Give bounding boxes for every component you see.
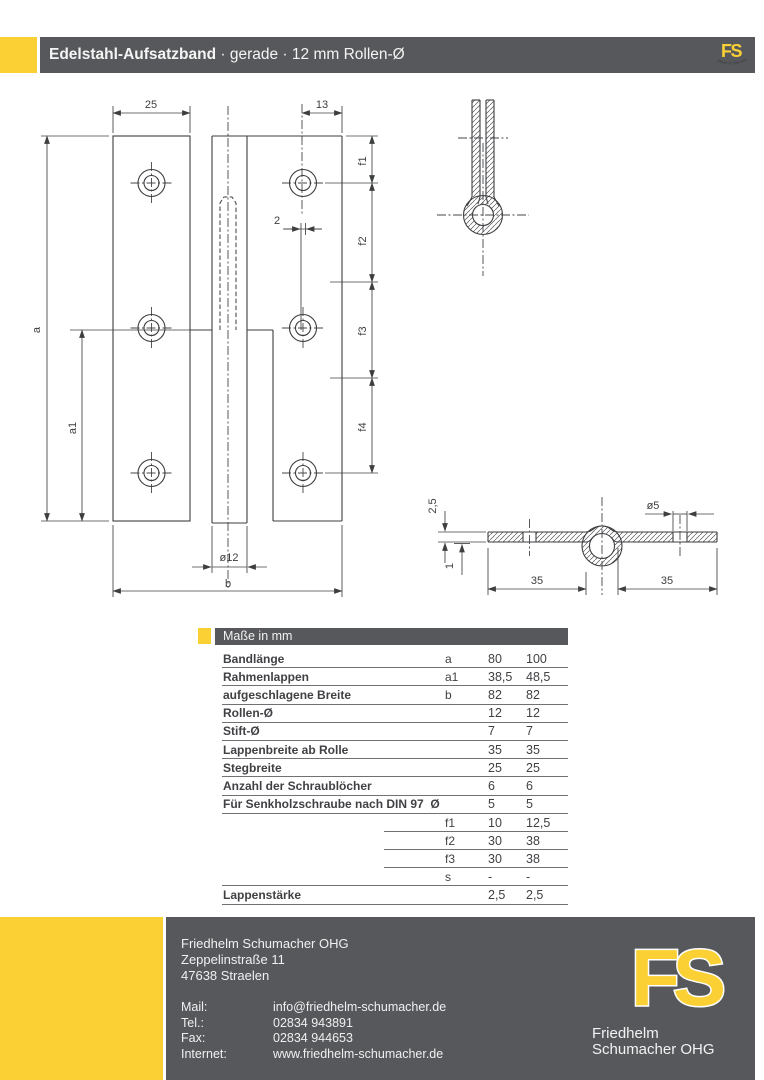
table-cell-label: Lappenstärke xyxy=(222,888,440,902)
dim-label-b: b xyxy=(225,578,231,590)
table-cell-v2: 82 xyxy=(522,688,568,702)
company-line: 47638 Straelen xyxy=(181,968,349,984)
table-cell-v1: 25 xyxy=(484,761,522,775)
technical-drawing: 25 13 2 a a1 f1 f2 f3 f4 ø12 b xyxy=(0,0,764,625)
table-cell-v2: 35 xyxy=(522,743,568,757)
contact-value: info@friedhelm-schumacher.de xyxy=(273,1000,446,1016)
table-cell-sym: f2 xyxy=(440,834,484,848)
contact-row: Internet:www.friedhelm-schumacher.de xyxy=(181,1047,446,1063)
table-cell-v1: 38,5 xyxy=(484,670,522,684)
dim-label-35-left: 35 xyxy=(531,575,543,587)
dim-label-f1: f1 xyxy=(357,156,369,165)
contact-row: Mail:info@friedhelm-schumacher.de xyxy=(181,1000,446,1016)
table-cell-v1: 30 xyxy=(484,852,522,866)
table-cell-v1: 82 xyxy=(484,688,522,702)
table-cell-v2: - xyxy=(522,870,568,884)
side-view xyxy=(437,100,529,276)
table-cell-v1: 12 xyxy=(484,706,522,720)
center-lines xyxy=(131,104,325,588)
dim-label-13: 13 xyxy=(316,99,328,111)
contact-row: Fax:02834 944653 xyxy=(181,1031,446,1047)
contact-label: Internet: xyxy=(181,1047,273,1063)
table-row: f33038 xyxy=(222,850,568,868)
dim-label-roll: ø12 xyxy=(220,552,239,564)
contact-row: Tel.:02834 943891 xyxy=(181,1016,446,1032)
dim-label-2: 2 xyxy=(274,215,280,227)
table-cell-v2: 5 xyxy=(522,797,568,811)
table-cell-v1: 6 xyxy=(484,779,522,793)
dim-label-f3: f3 xyxy=(357,326,369,335)
dim-label-thickness: 2,5 xyxy=(427,498,439,513)
table-cell-sym: f1 xyxy=(440,816,484,830)
dim-label-25: 25 xyxy=(145,99,157,111)
table-cell-v1: - xyxy=(484,870,522,884)
table-cell-v2: 12,5 xyxy=(522,816,568,830)
table-cell-v1: 5 xyxy=(484,797,522,811)
table-row: aufgeschlagene Breiteb8282 xyxy=(222,686,568,704)
footer-brand-name: Friedhelm Schumacher OHG xyxy=(592,1026,715,1057)
table-row: Rahmenlappena138,548,5 xyxy=(222,668,568,686)
table-header: Maße in mm xyxy=(215,628,568,645)
dim-label-f4: f4 xyxy=(357,422,369,431)
datasheet-page: { "page": { "title_bold": "Edelstahl-Auf… xyxy=(0,0,764,1080)
table-row: Stegbreite2525 xyxy=(222,759,568,777)
footer-company-address: Friedhelm Schumacher OHGZeppelinstraße 1… xyxy=(181,936,349,984)
table-cell-v2: 12 xyxy=(522,706,568,720)
company-line: Friedhelm Schumacher OHG xyxy=(181,936,349,952)
table-cell-sym: f3 xyxy=(440,852,484,866)
table-cell-label: Rollen-Ø xyxy=(222,706,440,720)
section-view: 2,5 1 ø5 35 35 xyxy=(427,497,717,595)
table-cell-label: Für Senkholzschraube nach DIN 97 Ø xyxy=(222,797,440,811)
table-cell-label: Stegbreite xyxy=(222,761,440,775)
brand-logo-large: FS xyxy=(580,925,760,1025)
table-cell-v1: 2,5 xyxy=(484,888,522,902)
dim-label-a: a xyxy=(31,326,43,333)
table-cell-v2: 25 xyxy=(522,761,568,775)
contact-value: www.friedhelm-schumacher.de xyxy=(273,1047,446,1063)
table-row: Lappenbreite ab Rolle3535 xyxy=(222,741,568,759)
table-cell-label: Bandlänge xyxy=(222,652,440,666)
table-row: f23038 xyxy=(222,832,568,850)
table-cell-label: Stift-Ø xyxy=(222,724,440,738)
contact-label: Fax: xyxy=(181,1031,273,1047)
table-row: Stift-Ø77 xyxy=(222,723,568,741)
brand-monogram-icon: FS xyxy=(631,933,724,1022)
dimensions-table: Bandlängea80100Rahmenlappena138,548,5auf… xyxy=(222,650,568,905)
table-accent-square xyxy=(198,628,211,644)
front-dimensions xyxy=(41,106,378,597)
table-cell-v2: 2,5 xyxy=(522,888,568,902)
table-cell-v1: 80 xyxy=(484,652,522,666)
dim-label-one: 1 xyxy=(444,563,456,569)
table-cell-label: aufgeschlagene Breite xyxy=(222,688,440,702)
table-cell-v2: 7 xyxy=(522,724,568,738)
table-cell-label: Rahmenlappen xyxy=(222,670,440,684)
table-cell-label: Lappenbreite ab Rolle xyxy=(222,743,440,757)
contact-label: Tel.: xyxy=(181,1016,273,1032)
table-cell-sym: b xyxy=(440,688,484,702)
dim-label-35-right: 35 xyxy=(661,575,673,587)
table-cell-v2: 100 xyxy=(522,652,568,666)
table-row: Anzahl der Schraublöcher66 xyxy=(222,777,568,795)
table-cell-v1: 30 xyxy=(484,834,522,848)
table-cell-v2: 38 xyxy=(522,852,568,866)
table-row: Bandlängea80100 xyxy=(222,650,568,668)
table-cell-label: Anzahl der Schraublöcher xyxy=(222,779,440,793)
table-cell-v2: 48,5 xyxy=(522,670,568,684)
table-row: s-- xyxy=(222,868,568,886)
dim-label-a1: a1 xyxy=(67,422,79,434)
contact-value: 02834 944653 xyxy=(273,1031,446,1047)
contact-label: Mail: xyxy=(181,1000,273,1016)
company-line: Zeppelinstraße 11 xyxy=(181,952,349,968)
table-row: Lappenstärke2,52,5 xyxy=(222,886,568,904)
table-row: Rollen-Ø1212 xyxy=(222,705,568,723)
front-view xyxy=(113,136,342,523)
table-cell-sym: a1 xyxy=(440,670,484,684)
table-row: Für Senkholzschraube nach DIN 97 Ø55 xyxy=(222,796,568,814)
table-cell-v1: 7 xyxy=(484,724,522,738)
screw-holes xyxy=(138,170,317,487)
table-cell-v1: 10 xyxy=(484,816,522,830)
footer-contact-list: Mail:info@friedhelm-schumacher.deTel.:02… xyxy=(181,1000,446,1062)
table-cell-sym: a xyxy=(440,652,484,666)
table-cell-v2: 6 xyxy=(522,779,568,793)
dim-label-hole: ø5 xyxy=(647,500,660,512)
contact-value: 02834 943891 xyxy=(273,1016,446,1032)
dim-label-f2: f2 xyxy=(357,236,369,245)
footer-accent-block xyxy=(0,917,163,1080)
table-row: f11012,5 xyxy=(222,814,568,832)
table-cell-v1: 35 xyxy=(484,743,522,757)
table-cell-sym: s xyxy=(440,870,484,884)
table-cell-v2: 38 xyxy=(522,834,568,848)
